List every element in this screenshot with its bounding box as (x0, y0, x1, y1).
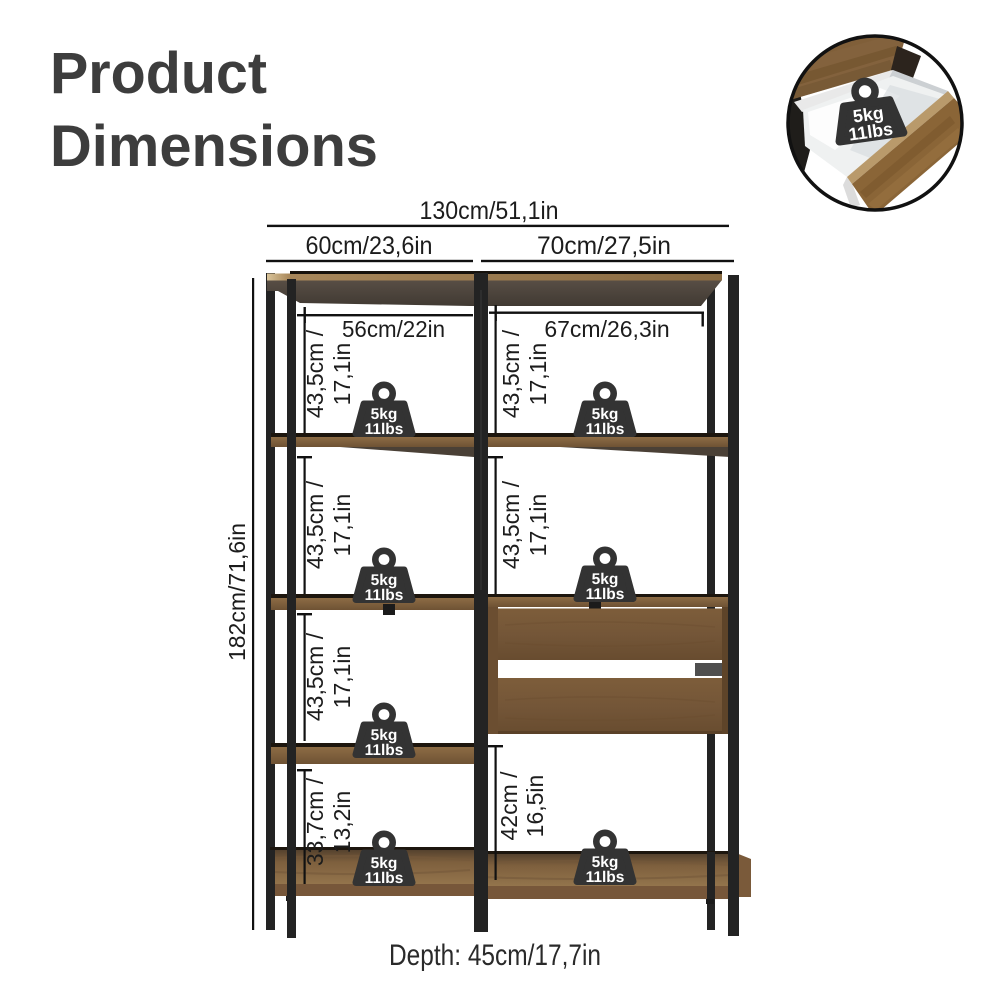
svg-text:60cm/23,6in: 60cm/23,6in (306, 232, 433, 260)
svg-text:13,2in: 13,2in (329, 791, 355, 854)
svg-text:17,1in: 17,1in (329, 646, 355, 709)
svg-text:17,1in: 17,1in (525, 343, 551, 406)
svg-text:17,1in: 17,1in (329, 343, 355, 406)
svg-text:130cm/51,1in: 130cm/51,1in (420, 197, 559, 225)
svg-text:43,5cm /: 43,5cm / (498, 329, 524, 418)
svg-text:Depth: 45cm/17,7in: Depth: 45cm/17,7in (389, 939, 601, 972)
svg-text:70cm/27,5in: 70cm/27,5in (537, 232, 671, 260)
svg-text:17,1in: 17,1in (329, 494, 355, 557)
svg-text:43,5cm /: 43,5cm / (302, 632, 328, 721)
svg-text:43,5cm /: 43,5cm / (302, 480, 328, 569)
svg-text:33,7cm /: 33,7cm / (302, 777, 328, 866)
svg-text:43,5cm /: 43,5cm / (498, 480, 524, 569)
svg-text:Product: Product (50, 41, 267, 106)
svg-text:182cm/71,6in: 182cm/71,6in (224, 523, 250, 661)
svg-text:42cm /: 42cm / (496, 771, 522, 841)
svg-text:56cm/22in: 56cm/22in (342, 316, 445, 342)
svg-text:43,5cm /: 43,5cm / (302, 329, 328, 418)
svg-text:Dimensions: Dimensions (50, 114, 378, 179)
svg-text:16,5in: 16,5in (522, 775, 548, 838)
svg-text:17,1in: 17,1in (525, 494, 551, 557)
svg-text:67cm/26,3in: 67cm/26,3in (544, 316, 669, 342)
